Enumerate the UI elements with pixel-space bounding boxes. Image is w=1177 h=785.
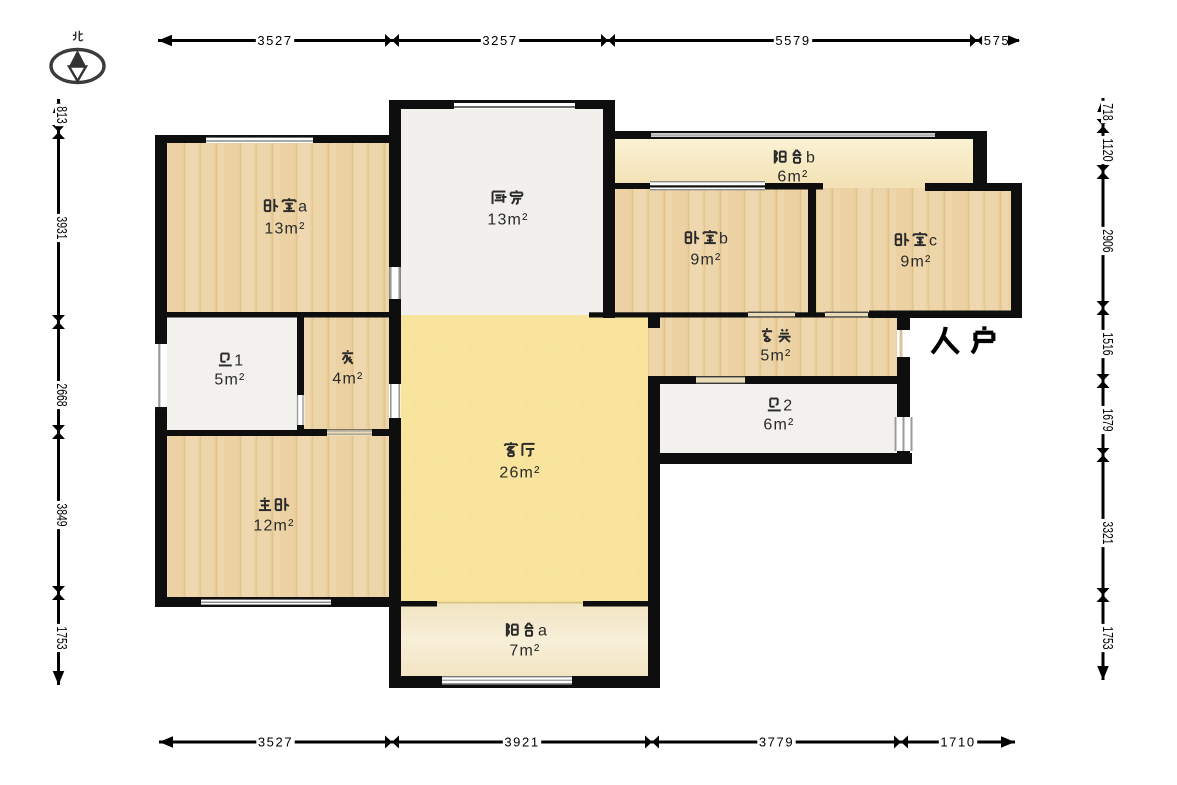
svg-text:3779: 3779: [759, 734, 794, 749]
svg-text:3527: 3527: [257, 33, 292, 48]
svg-text:a: a: [298, 199, 307, 216]
svg-text:2: 2: [783, 398, 792, 415]
svg-text:9m²: 9m²: [900, 254, 931, 271]
svg-text:5579: 5579: [775, 33, 810, 48]
svg-text:1753: 1753: [53, 626, 70, 649]
svg-text:1: 1: [234, 353, 243, 370]
svg-text:718: 718: [1099, 103, 1116, 120]
svg-text:3931: 3931: [53, 216, 70, 239]
svg-text:26m²: 26m²: [499, 465, 540, 482]
svg-text:3321: 3321: [1099, 521, 1116, 544]
svg-text:b: b: [806, 150, 815, 167]
svg-text:c: c: [929, 233, 937, 250]
svg-text:a: a: [538, 623, 547, 640]
svg-text:4m²: 4m²: [332, 371, 363, 388]
svg-text:2906: 2906: [1099, 229, 1116, 252]
svg-text:12m²: 12m²: [253, 518, 294, 535]
svg-text:9m²: 9m²: [690, 252, 721, 269]
svg-text:6m²: 6m²: [763, 417, 794, 434]
svg-text:1753: 1753: [1099, 626, 1116, 649]
svg-text:3921: 3921: [504, 734, 539, 749]
svg-text:13m²: 13m²: [264, 221, 305, 238]
svg-text:3257: 3257: [482, 33, 517, 48]
svg-text:1120: 1120: [1099, 138, 1116, 161]
svg-text:13m²: 13m²: [487, 212, 528, 229]
svg-text:813: 813: [53, 106, 70, 123]
svg-text:1710: 1710: [940, 734, 975, 749]
svg-text:6m²: 6m²: [777, 169, 808, 186]
svg-text:5m²: 5m²: [760, 348, 791, 365]
svg-text:3527: 3527: [258, 734, 293, 749]
svg-text:7m²: 7m²: [509, 643, 540, 660]
svg-text:1679: 1679: [1099, 408, 1116, 431]
svg-text:b: b: [719, 231, 728, 248]
svg-text:3849: 3849: [53, 503, 70, 526]
svg-text:575: 575: [984, 33, 1011, 48]
svg-text:1516: 1516: [1099, 332, 1116, 355]
svg-text:2668: 2668: [53, 383, 70, 406]
svg-text:5m²: 5m²: [214, 372, 245, 389]
